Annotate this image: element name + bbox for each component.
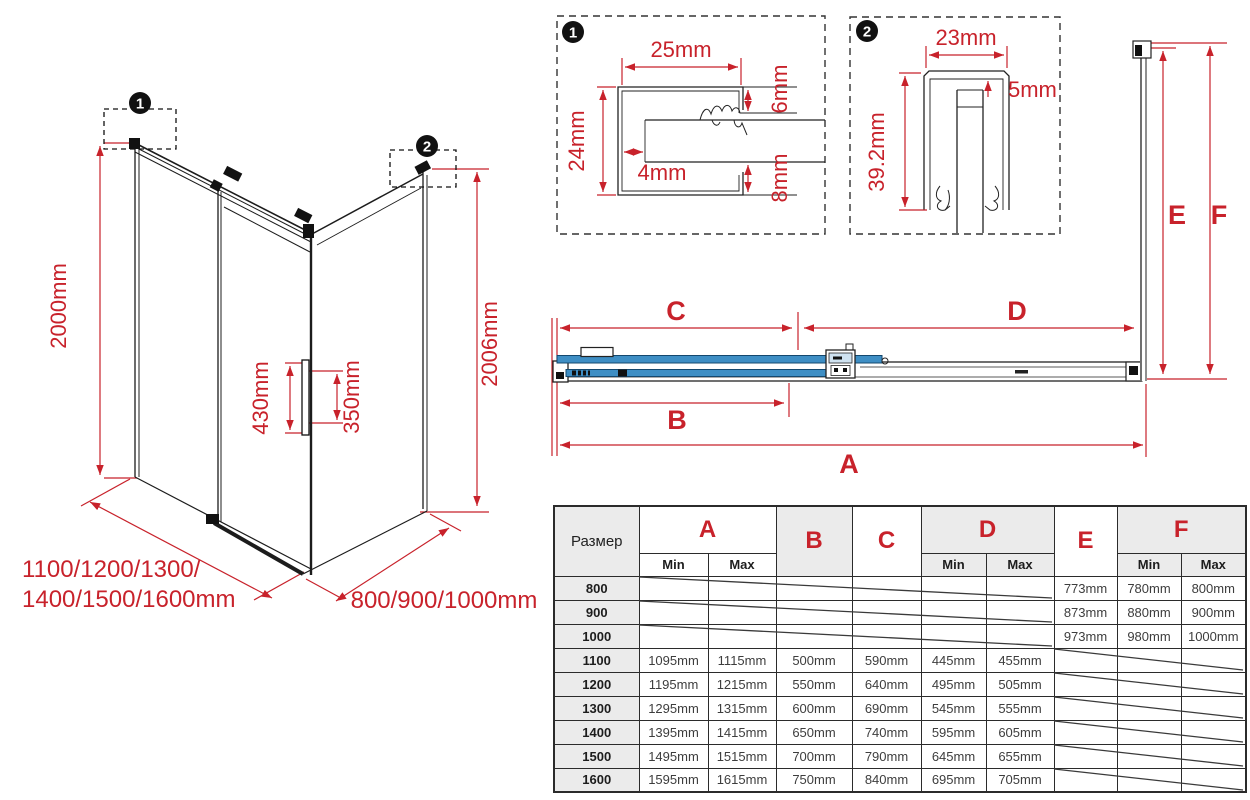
cell-f-max xyxy=(1181,648,1246,672)
cell-a-min xyxy=(639,576,708,600)
cell-a-max: 1415mm xyxy=(708,720,776,744)
row-size: 1200 xyxy=(554,672,639,696)
row-size: 1500 xyxy=(554,744,639,768)
cell-f-min xyxy=(1117,768,1181,792)
isometric-view: 2000mm 2006mm 430mm 350mm 1100/1200/1300… xyxy=(22,92,537,614)
cell-d-min: 445mm xyxy=(921,648,986,672)
detail-1-dim-right-top: 6mm xyxy=(767,65,792,114)
cell-a-max: 1215mm xyxy=(708,672,776,696)
size-table: Размер A B C D E F Min Max Min Max Min M… xyxy=(553,505,1245,791)
cell-d-max xyxy=(986,624,1054,648)
cell-e xyxy=(1054,672,1117,696)
dim-handle-length-label: 430mm xyxy=(248,361,273,434)
door-handle xyxy=(302,360,309,435)
table-row: 1400 1395mm 1415mm 650mm 740mm 595mm 605… xyxy=(554,720,1246,744)
table-a-min-header: Min xyxy=(639,553,708,576)
section-label-a: A xyxy=(839,449,859,479)
detail-2-dim-gap: 5mm xyxy=(1008,77,1057,102)
cell-f-min: 780mm xyxy=(1117,576,1181,600)
cell-d-min: 495mm xyxy=(921,672,986,696)
row-size: 800 xyxy=(554,576,639,600)
cell-f-max: 900mm xyxy=(1181,600,1246,624)
dim-width-options-line2: 1400/1500/1600mm xyxy=(22,586,236,613)
cell-f-min xyxy=(1117,744,1181,768)
cell-d-min xyxy=(921,576,986,600)
table-col-b: B xyxy=(776,506,852,576)
cell-d-min xyxy=(921,624,986,648)
cell-e: 773mm xyxy=(1054,576,1117,600)
table-size-header: Размер xyxy=(554,506,639,576)
section-label-c: C xyxy=(666,296,686,326)
table-row: 1300 1295mm 1315mm 600mm 690mm 545mm 555… xyxy=(554,696,1246,720)
cell-a-min: 1395mm xyxy=(639,720,708,744)
cell-d-max: 555mm xyxy=(986,696,1054,720)
cell-d-max: 655mm xyxy=(986,744,1054,768)
table-col-a: A xyxy=(639,506,776,553)
cell-f-max xyxy=(1181,696,1246,720)
cell-b: 650mm xyxy=(776,720,852,744)
cell-a-max: 1115mm xyxy=(708,648,776,672)
cell-d-max xyxy=(986,576,1054,600)
cell-b: 700mm xyxy=(776,744,852,768)
iso-enclosure-lines xyxy=(135,143,427,575)
dim-handle-centers-label: 350mm xyxy=(339,360,364,433)
cell-c: 790mm xyxy=(852,744,921,768)
cell-d-min: 645mm xyxy=(921,744,986,768)
detail-1-dim-gap: 4mm xyxy=(638,160,687,185)
badge-1-number: 1 xyxy=(136,96,144,113)
cell-c: 590mm xyxy=(852,648,921,672)
cell-e xyxy=(1054,696,1117,720)
cell-e xyxy=(1054,744,1117,768)
cell-e xyxy=(1054,720,1117,744)
section-label-e: E xyxy=(1168,200,1186,230)
detail-2-profile xyxy=(924,71,1009,233)
cell-c xyxy=(852,576,921,600)
table-row: 1000 973mm 980mm 1000mm xyxy=(554,624,1246,648)
table-col-e: E xyxy=(1054,506,1117,576)
row-size: 1600 xyxy=(554,768,639,792)
cell-f-min: 980mm xyxy=(1117,624,1181,648)
cell-a-min xyxy=(639,624,708,648)
cell-d-min: 595mm xyxy=(921,720,986,744)
table-a-max-header: Max xyxy=(708,553,776,576)
dim-width-options-line1: 1100/1200/1300/ xyxy=(22,556,201,583)
cell-a-min xyxy=(639,600,708,624)
cell-a-max xyxy=(708,576,776,600)
cell-b: 750mm xyxy=(776,768,852,792)
cell-d-min: 695mm xyxy=(921,768,986,792)
detail-1-dim-left: 24mm xyxy=(564,110,589,171)
cell-d-max xyxy=(986,600,1054,624)
cell-f-min xyxy=(1117,672,1181,696)
table-row: 1600 1595mm 1615mm 750mm 840mm 695mm 705… xyxy=(554,768,1246,792)
cell-f-max xyxy=(1181,672,1246,696)
cell-b xyxy=(776,576,852,600)
detail-1-dim-right-bottom: 8mm xyxy=(767,154,792,203)
row-size: 1400 xyxy=(554,720,639,744)
cell-b: 600mm xyxy=(776,696,852,720)
cell-d-max: 505mm xyxy=(986,672,1054,696)
section-track-assembly xyxy=(553,41,1151,382)
cell-f-max xyxy=(1181,720,1246,744)
row-size: 1000 xyxy=(554,624,639,648)
table-f-max-header: Max xyxy=(1181,553,1246,576)
detail-2-badge-number: 2 xyxy=(863,24,871,41)
cell-f-max xyxy=(1181,768,1246,792)
table-col-f: F xyxy=(1117,506,1246,553)
cell-b xyxy=(776,600,852,624)
cell-a-min: 1195mm xyxy=(639,672,708,696)
cell-c: 640mm xyxy=(852,672,921,696)
cell-d-min: 545mm xyxy=(921,696,986,720)
detail-2-view: 2 23mm 5mm 39.2mm xyxy=(850,17,1060,234)
cell-a-min: 1295mm xyxy=(639,696,708,720)
section-label-f: F xyxy=(1211,200,1228,230)
cell-e xyxy=(1054,768,1117,792)
cell-c xyxy=(852,624,921,648)
section-dim-lines xyxy=(552,43,1227,457)
cell-f-max xyxy=(1181,744,1246,768)
cell-a-min: 1595mm xyxy=(639,768,708,792)
table-row: 1100 1095mm 1115mm 500mm 590mm 445mm 455… xyxy=(554,648,1246,672)
cell-b xyxy=(776,624,852,648)
cell-f-min xyxy=(1117,720,1181,744)
cell-f-min xyxy=(1117,696,1181,720)
row-size: 1100 xyxy=(554,648,639,672)
dim-height-left-label: 2000mm xyxy=(46,263,71,349)
detail-1-view: 1 25mm 24mm 4mm 6mm 8mm xyxy=(557,16,825,234)
top-section-view: C D B A E F xyxy=(552,41,1227,479)
dim-height-right-label: 2006mm xyxy=(477,301,502,387)
detail-1-badge-number: 1 xyxy=(569,25,577,42)
cell-a-min: 1495mm xyxy=(639,744,708,768)
cell-a-max: 1615mm xyxy=(708,768,776,792)
row-size: 900 xyxy=(554,600,639,624)
table-d-min-header: Min xyxy=(921,553,986,576)
iso-dimensions xyxy=(81,143,489,601)
section-label-d: D xyxy=(1007,296,1027,326)
cell-f-max: 1000mm xyxy=(1181,624,1246,648)
row-size: 1300 xyxy=(554,696,639,720)
badge-2-number: 2 xyxy=(423,139,431,156)
table-col-d: D xyxy=(921,506,1054,553)
cell-b: 500mm xyxy=(776,648,852,672)
table-d-max-header: Max xyxy=(986,553,1054,576)
detail-1-dim-top: 25mm xyxy=(650,37,711,62)
cell-d-min xyxy=(921,600,986,624)
cell-c: 740mm xyxy=(852,720,921,744)
cell-b: 550mm xyxy=(776,672,852,696)
table-row: 1500 1495mm 1515mm 700mm 790mm 645mm 655… xyxy=(554,744,1246,768)
cell-a-max: 1515mm xyxy=(708,744,776,768)
table-col-c: C xyxy=(852,506,921,576)
cell-f-min: 880mm xyxy=(1117,600,1181,624)
iso-hardware-brackets xyxy=(129,138,431,524)
detail-2-dim-top: 23mm xyxy=(935,25,996,50)
cell-c: 840mm xyxy=(852,768,921,792)
cell-a-max: 1315mm xyxy=(708,696,776,720)
sliding-glass-panel-section xyxy=(566,370,830,377)
cell-d-max: 705mm xyxy=(986,768,1054,792)
dim-depth-options: 800/900/1000mm xyxy=(351,587,538,614)
section-label-b: B xyxy=(667,405,687,435)
cell-d-max: 605mm xyxy=(986,720,1054,744)
cell-e xyxy=(1054,648,1117,672)
cell-c xyxy=(852,600,921,624)
table-row: 1200 1195mm 1215mm 550mm 640mm 495mm 505… xyxy=(554,672,1246,696)
table-row: 900 873mm 880mm 900mm xyxy=(554,600,1246,624)
table-row: 800 773mm 780mm 800mm xyxy=(554,576,1246,600)
table-f-min-header: Min xyxy=(1117,553,1181,576)
cell-f-min xyxy=(1117,648,1181,672)
dimension-drawing-page: { "colors": {"red":"#c8222b","blue":"#3e… xyxy=(0,0,1250,800)
cell-d-max: 455mm xyxy=(986,648,1054,672)
cell-e: 973mm xyxy=(1054,624,1117,648)
cell-a-min: 1095mm xyxy=(639,648,708,672)
cell-e: 873mm xyxy=(1054,600,1117,624)
cell-a-max xyxy=(708,600,776,624)
cell-a-max xyxy=(708,624,776,648)
cell-c: 690mm xyxy=(852,696,921,720)
detail-2-dim-left: 39.2mm xyxy=(864,112,889,191)
cell-f-max: 800mm xyxy=(1181,576,1246,600)
